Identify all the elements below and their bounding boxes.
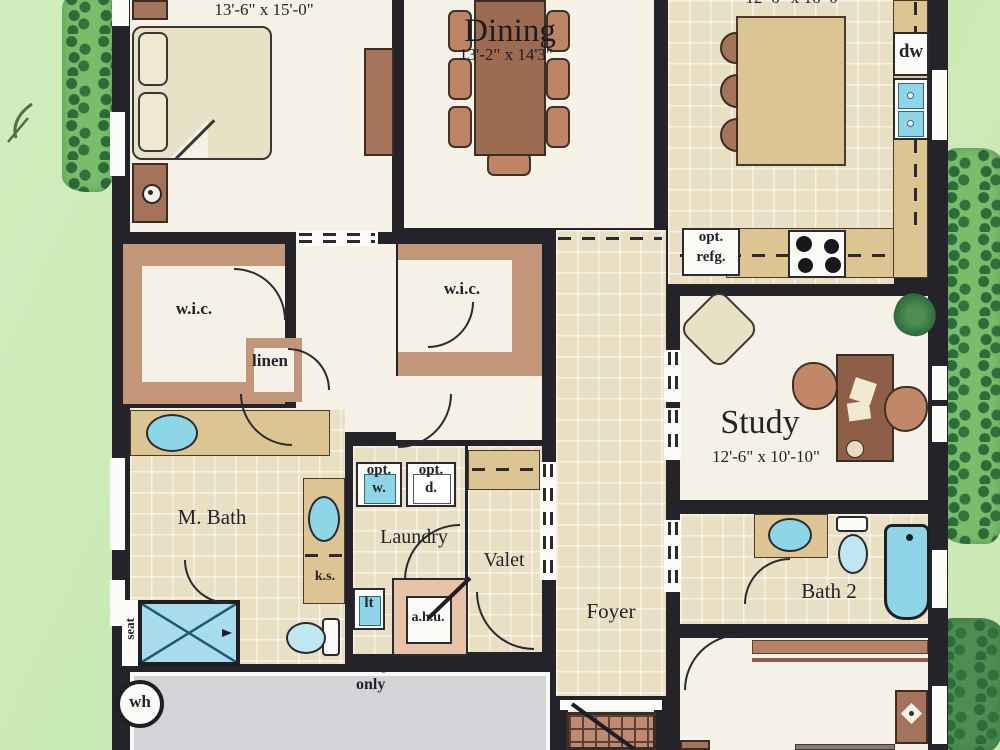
kitchen-sink — [893, 78, 929, 140]
opt-d-label-1: opt. — [419, 463, 444, 479]
laundry-label: Laundry — [380, 527, 448, 548]
rough-in-label-1: rough-in — [356, 656, 415, 674]
dining-dims: 13'-2" x 14'3" — [459, 46, 553, 64]
toilet-bowl — [838, 534, 868, 574]
shower — [138, 600, 240, 666]
study-dims: 12'-6" x 10'-10" — [712, 448, 820, 466]
window-right-bath2 — [932, 550, 947, 608]
dining-chair — [546, 58, 570, 100]
foyer-label: Foyer — [587, 600, 636, 622]
sink — [146, 414, 198, 452]
dresser — [364, 48, 394, 156]
opt-d-label-2: d. — [425, 481, 437, 497]
opt-w-label-2: w. — [372, 481, 386, 497]
ks-label: k.s. — [315, 570, 335, 585]
knee-space-dash — [305, 554, 343, 557]
cabinet-dash — [914, 140, 917, 228]
study-chair — [792, 362, 838, 410]
window-right-kitchen — [932, 70, 947, 140]
master-bedroom-dims: 13'-6" x 15'-0" — [214, 1, 313, 19]
valet-label: Valet — [483, 550, 524, 571]
window-right-study-b — [932, 406, 947, 442]
stove — [788, 230, 846, 278]
sink — [308, 496, 340, 542]
mbath-label: M. Bath — [178, 506, 247, 528]
window-right-study-a — [932, 366, 947, 400]
lamp-dot — [148, 190, 153, 195]
window-left-2 — [110, 112, 125, 176]
bed-fold — [170, 120, 208, 158]
pillow — [138, 32, 168, 86]
dining-chair — [546, 106, 570, 148]
dresser — [680, 740, 710, 750]
bed2-edge — [795, 744, 895, 750]
opt-refg-label-2: refg. — [696, 250, 725, 266]
toilet-tank — [836, 516, 868, 532]
dw-label: dw — [899, 42, 923, 62]
floor-plan: 13'-6" x 15'-0" 12'-6" x 16'-0" Dining 1… — [0, 0, 1000, 750]
opt-refg-label-1: opt. — [699, 230, 724, 246]
pantry — [893, 0, 928, 34]
hedge-left — [62, 0, 114, 192]
bathtub — [884, 524, 930, 620]
wic-left-inside — [142, 266, 246, 382]
window-right-bedroom2 — [932, 686, 947, 744]
gallery-dash — [558, 237, 662, 240]
study-opening — [664, 408, 681, 460]
window-left-1 — [112, 0, 129, 26]
rough-in-label-2: only — [356, 676, 385, 694]
island — [736, 16, 846, 166]
study-opening — [664, 350, 681, 402]
hall-floor — [296, 244, 396, 432]
sink — [768, 518, 812, 552]
foyer-hall-floor — [556, 230, 666, 696]
ahu-label: a.h.u. — [411, 611, 444, 626]
dining-chair — [448, 106, 472, 148]
dining-title: Dining — [464, 14, 556, 49]
study-title: Study — [720, 405, 799, 441]
garage-floor — [130, 672, 550, 750]
closet-rod — [752, 658, 928, 662]
valet-cabinet-dash — [472, 468, 536, 471]
dining-chair — [448, 58, 472, 100]
pillow — [138, 92, 168, 152]
seat-label: seat — [123, 618, 137, 640]
nightstand — [132, 0, 168, 20]
wic-left-label: w.i.c. — [176, 300, 212, 318]
window-left-3 — [110, 458, 125, 550]
toilet-bowl — [286, 622, 326, 654]
wic-center-label: w.i.c. — [444, 280, 480, 298]
opt-w-label-1: opt. — [367, 463, 392, 479]
handwritten-mark — [2, 98, 46, 158]
closet-shelf — [752, 640, 928, 654]
lt-label: lt — [364, 596, 373, 612]
bath2-label: Bath 2 — [801, 580, 856, 602]
hall-opening — [664, 520, 681, 592]
linen-label: linen — [252, 352, 288, 370]
kitchen-dims: 12'-6" x 16'-0" — [745, 0, 844, 7]
cabinet-dash — [914, 2, 917, 32]
wh-label: wh — [129, 693, 151, 711]
hedge-right — [942, 148, 1000, 544]
nightstand — [895, 690, 928, 744]
